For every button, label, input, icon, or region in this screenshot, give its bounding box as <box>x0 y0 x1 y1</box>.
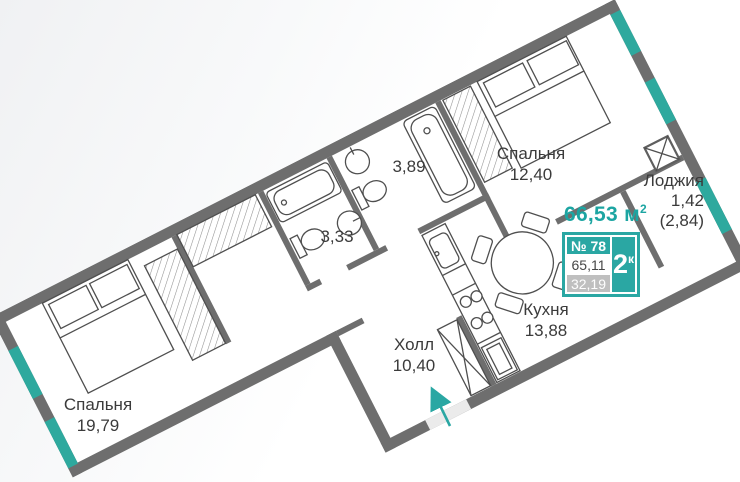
room-label-kitchen: Кухня 13,88 <box>491 299 601 341</box>
unit-info-badge: № 78 2к 65,11 32,19 <box>562 232 640 297</box>
room-name: Холл <box>364 334 464 355</box>
entrance-arrow-icon <box>414 376 462 430</box>
unit-info-grid: № 78 2к 65,11 32,19 <box>565 235 637 294</box>
total-area-value: 66,53 <box>564 203 618 226</box>
room-area: 3,89 <box>383 156 435 177</box>
room-area: 13,88 <box>491 320 601 341</box>
room-name: Кухня <box>491 299 601 320</box>
room-label-bedroom-top: Спальня 12,40 <box>481 143 581 185</box>
room-label-bedroom-left: Спальня 19,79 <box>47 394 149 436</box>
room-area: 10,40 <box>364 355 464 376</box>
room-area: 19,79 <box>47 415 149 436</box>
total-area-sup: 2 <box>640 202 647 216</box>
unit-rooms-value: 2 <box>613 249 628 280</box>
total-area-unit: м <box>624 203 640 226</box>
room-name: Спальня <box>47 394 149 415</box>
room-label-bathroom-small: 3,33 <box>311 226 363 247</box>
unit-rooms-count: 2к <box>612 237 635 292</box>
unit-rooms-suffix: к <box>628 252 634 266</box>
unit-secondary-area: 32,19 <box>567 275 610 292</box>
room-area: 12,40 <box>481 164 581 185</box>
room-name: Спальня <box>481 143 581 164</box>
room-name: Лоджия <box>602 171 704 191</box>
floor-plan-canvas: Спальня 12,40 Лоджия 1,42 (2,84) 3,89 3,… <box>0 0 740 482</box>
room-label-bathroom-large: 3,89 <box>383 156 435 177</box>
unit-number: № 78 <box>567 237 610 254</box>
total-area-label: 66,53 м2 <box>545 202 647 227</box>
room-label-hall: Холл 10,40 <box>364 334 464 376</box>
unit-living-area: 65,11 <box>567 256 610 273</box>
room-area: 3,33 <box>311 226 363 247</box>
